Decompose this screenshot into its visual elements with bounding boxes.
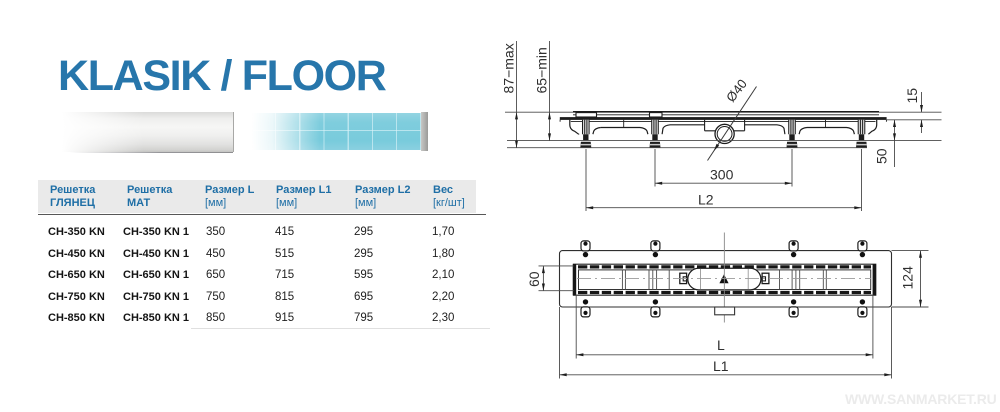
svg-text:L: L — [717, 337, 725, 353]
svg-text:L2: L2 — [698, 192, 714, 208]
svg-text:300: 300 — [710, 167, 734, 183]
svg-text:50: 50 — [874, 148, 890, 164]
svg-text:87−max: 87−max — [501, 43, 517, 93]
svg-text:Ø40: Ø40 — [723, 76, 750, 105]
svg-text:65−min: 65−min — [534, 47, 550, 93]
svg-text:L1: L1 — [713, 358, 729, 374]
svg-text:60: 60 — [526, 271, 542, 287]
svg-text:124: 124 — [900, 266, 916, 290]
svg-text:15: 15 — [904, 88, 920, 104]
